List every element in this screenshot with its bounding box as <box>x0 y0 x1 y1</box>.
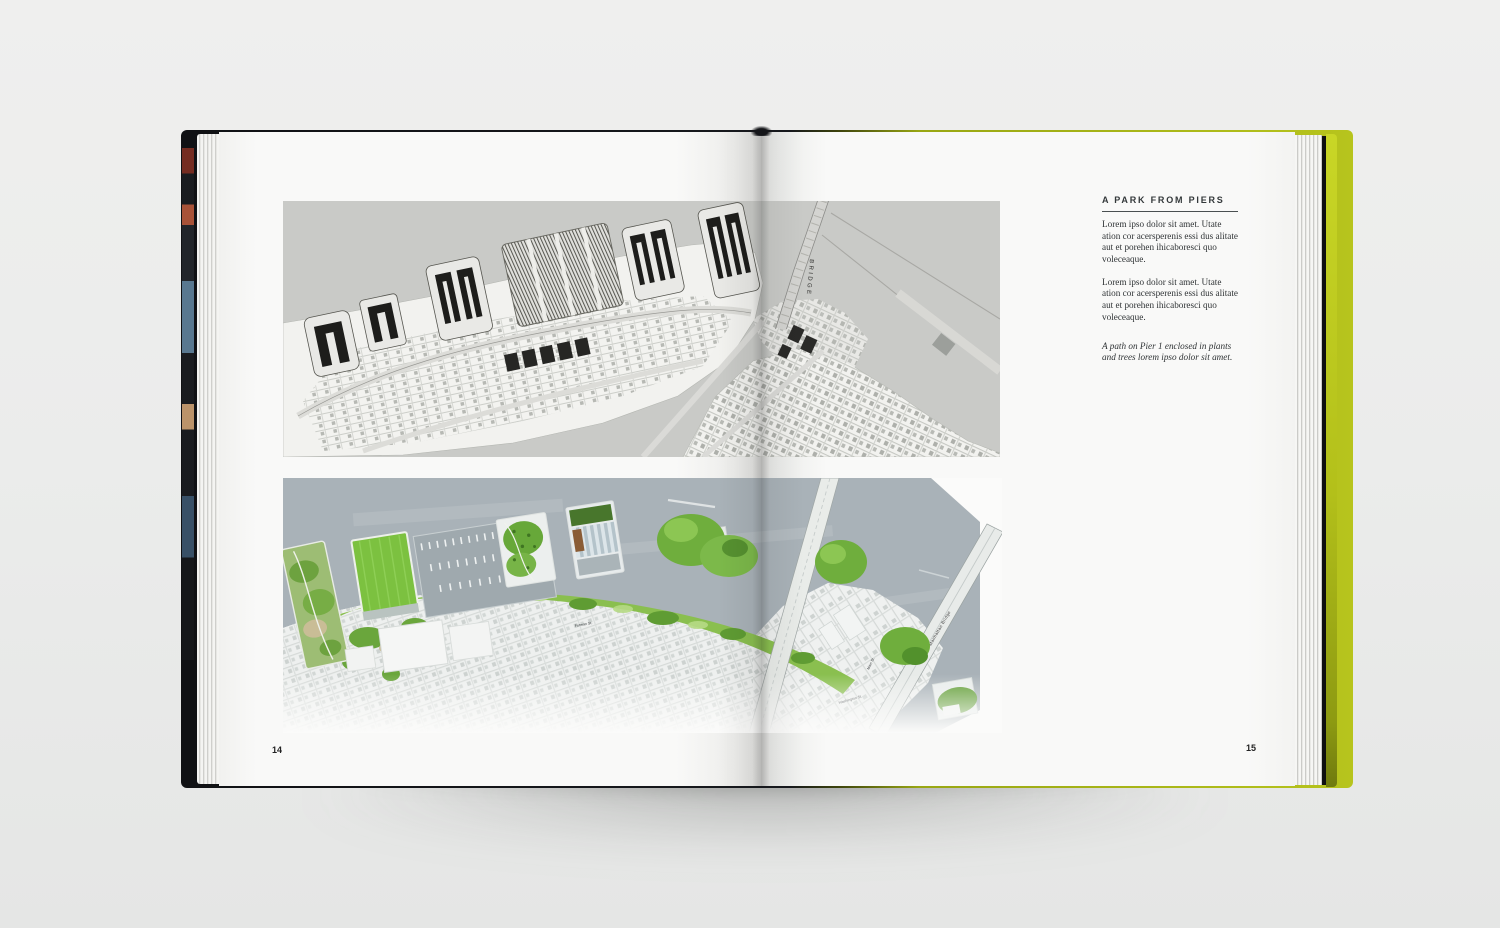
master-plan-map: Manhattan Bridge <box>283 478 1002 733</box>
image-caption: A path on Pier 1 enclosed in plants and … <box>1102 341 1238 364</box>
site-plan-map: BRIDGE <box>283 201 1000 457</box>
page-edges-right <box>1295 135 1322 785</box>
plan-fade-edge <box>283 674 1002 733</box>
spine-headband <box>751 126 772 136</box>
article-paragraph-1: Lorem ipso dolor sit amet. Utate ation c… <box>1102 219 1238 266</box>
back-cover-edge <box>1326 134 1337 787</box>
article-text-block: A PARK FROM PIERS Lorem ipso dolor sit a… <box>1102 195 1238 364</box>
article-paragraph-2: Lorem ipso dolor sit amet. Utate ation c… <box>1102 277 1238 324</box>
pier-2-lawn <box>351 532 419 621</box>
heading-rule <box>1102 211 1238 212</box>
page-number-right: 15 <box>1246 743 1256 753</box>
page-edges-left <box>197 134 219 784</box>
article-heading: A PARK FROM PIERS <box>1102 195 1238 205</box>
book-product-photo: BRIDGE <box>0 0 1500 928</box>
pier-3-trees <box>496 512 556 587</box>
front-cover-edge-artwork <box>182 148 194 660</box>
page-number-left: 14 <box>272 745 282 755</box>
